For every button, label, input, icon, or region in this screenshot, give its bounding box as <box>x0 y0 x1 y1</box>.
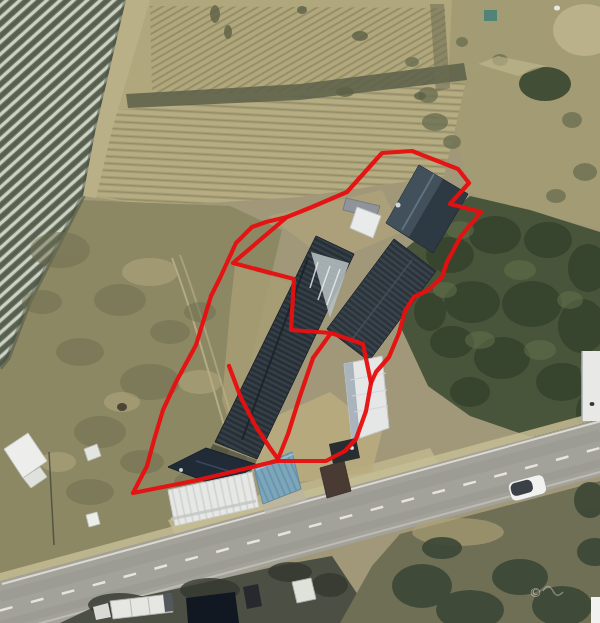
scrub-mottle-blob <box>120 450 164 474</box>
field-specks-blob <box>297 6 307 14</box>
trees-below-road-right-blob <box>422 537 462 559</box>
field-specks-blob <box>210 5 220 23</box>
tree-canopy-dark-blob <box>502 281 562 327</box>
bush-mottle-topright-blob <box>456 37 468 47</box>
bush-mottle-topright-blob <box>546 189 566 203</box>
scrub-mottle-blob <box>66 479 114 505</box>
scrub-mottle-blob <box>22 290 62 314</box>
bush-mottle-topright-blob <box>422 113 448 131</box>
scrub-mottle-blob <box>74 416 126 448</box>
white-building-right-dot <box>590 402 595 406</box>
tree-canopy-dark-blob <box>450 377 490 407</box>
scrub-mottle-blob <box>94 284 146 316</box>
bush-mottle-topright-blob <box>562 112 582 128</box>
bush-mottle-topright-blob <box>573 163 597 181</box>
scrub-light-mottle-blob <box>122 258 178 286</box>
aerial-photo: © <box>0 0 600 623</box>
navy-building-dot <box>179 468 183 472</box>
tree-canopy-dark-blob <box>414 293 446 331</box>
bush-mottle-topright-blob <box>443 135 461 149</box>
barn-vent-dot <box>396 203 401 208</box>
scrub-light-mottle-blob <box>178 370 222 394</box>
tree-canopy-light-blob <box>465 331 495 349</box>
tree-canopy-light-blob <box>557 291 583 309</box>
field-specks-blob <box>352 31 368 41</box>
white-speck-top <box>554 6 560 11</box>
field-specks-blob <box>224 25 232 39</box>
tree-canopy-light-blob <box>524 340 556 360</box>
tree-canopy-dark-blob <box>469 216 521 254</box>
tree-canopy-light-blob <box>504 260 536 280</box>
aerial-map-canvas[interactable]: © <box>0 0 600 623</box>
scrub-mottle-blob <box>184 302 216 322</box>
white-building-right-edge <box>582 351 600 421</box>
bush-mottle-topright-blob <box>405 57 419 67</box>
scrub-mottle-blob <box>56 338 104 366</box>
small-shed-2 <box>86 512 100 527</box>
field-specks-blob <box>336 87 354 97</box>
scrub-mottle-blob <box>30 232 90 268</box>
copyright-watermark: © <box>529 585 542 600</box>
white-patch-corner <box>591 597 600 623</box>
field-specks-blob <box>414 92 426 100</box>
scrub-below-left-dark-blob <box>312 573 348 597</box>
brown-object <box>117 403 127 411</box>
tree-canopy-dark-blob <box>524 222 572 258</box>
teal-object <box>484 10 497 21</box>
scrub-mottle-blob <box>150 320 190 344</box>
